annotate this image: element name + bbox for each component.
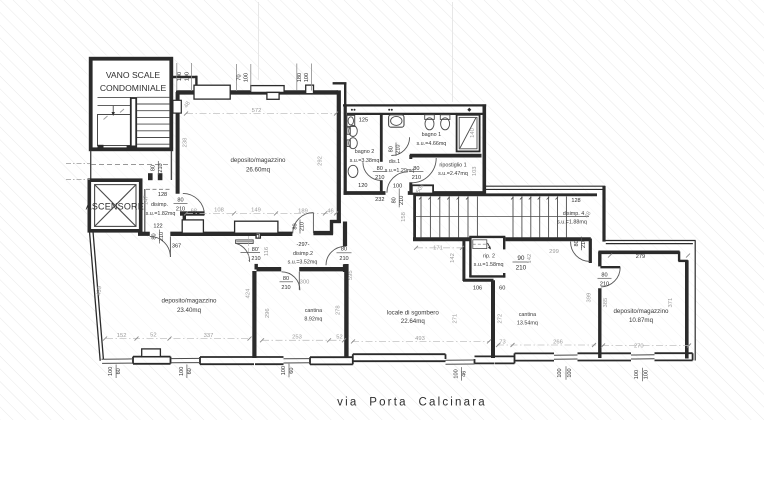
svg-text:60: 60 [289,367,295,373]
svg-text:210: 210 [600,282,609,288]
svg-text:147: 147 [143,195,149,205]
svg-text:100: 100 [185,72,191,81]
svg-text:158: 158 [401,212,407,222]
svg-text:292: 292 [318,156,324,166]
svg-text:108: 108 [214,208,224,214]
svg-text:deposito/magazzino: deposito/magazzino [230,157,286,164]
svg-text:80: 80 [341,247,347,253]
svg-text:cantina: cantina [305,308,322,314]
svg-text:232: 232 [375,197,384,203]
svg-text:52: 52 [336,335,342,341]
svg-text:100: 100 [108,367,114,376]
svg-text:70: 70 [236,74,242,80]
svg-text:100: 100 [179,367,185,376]
svg-text:367: 367 [172,244,181,250]
svg-text:371: 371 [668,298,674,308]
svg-text:296: 296 [265,308,271,318]
svg-text:299: 299 [549,249,559,255]
svg-text:80: 80 [151,165,157,171]
svg-text:60: 60 [187,368,193,374]
svg-text:s.u.=3.52mq: s.u.=3.52mq [288,260,318,266]
svg-text:572: 572 [252,108,262,114]
svg-text:100: 100 [281,366,287,375]
svg-text:493: 493 [415,336,425,342]
svg-text:278: 278 [336,305,342,315]
svg-text:210: 210 [158,163,164,172]
svg-text:s.u.=1.58mq: s.u.=1.58mq [474,262,504,268]
svg-text:210: 210 [412,175,421,181]
svg-text:10.87mq: 10.87mq [629,317,654,324]
svg-text:210: 210 [516,265,527,272]
svg-text:399: 399 [587,293,593,303]
svg-text:120: 120 [358,183,367,189]
svg-text:via Porta Calcinara: via Porta Calcinara [337,397,487,409]
svg-text:80: 80 [413,166,419,172]
svg-text:116: 116 [264,247,270,256]
svg-text:210: 210 [581,239,587,248]
svg-text:142: 142 [450,253,456,263]
svg-text:13.54mq: 13.54mq [517,321,538,327]
svg-text:80': 80' [252,247,259,253]
svg-text:266: 266 [553,339,563,345]
svg-text:100: 100 [634,370,640,379]
svg-text:337: 337 [204,333,214,339]
svg-text:140: 140 [470,128,476,138]
svg-text:46: 46 [461,371,467,377]
svg-text:disimp.: disimp. [151,202,168,208]
svg-text:60: 60 [499,285,505,291]
svg-text:22.64mq: 22.64mq [401,318,426,325]
svg-text:90: 90 [517,255,525,262]
svg-text:424: 424 [245,288,251,298]
svg-text:80: 80 [292,223,298,229]
svg-text:100: 100 [567,368,573,377]
svg-text:80: 80 [601,272,607,278]
svg-text:60: 60 [116,368,122,374]
svg-text:210: 210 [339,256,348,262]
svg-text:279: 279 [636,254,645,260]
svg-text:125: 125 [359,117,368,123]
svg-text:80: 80 [392,197,398,203]
svg-text:locale di sgombero: locale di sgombero [387,310,439,317]
svg-text:26.60mq: 26.60mq [246,167,271,174]
svg-text:bagno 1: bagno 1 [422,132,442,138]
svg-text:80: 80 [574,240,580,246]
svg-text:122: 122 [153,224,162,230]
svg-text:73: 73 [499,339,505,345]
svg-text:deposito/magazzino: deposito/magazzino [613,308,669,315]
svg-text:s.u.=1.29mq: s.u.=1.29mq [385,168,415,174]
svg-text:100: 100 [244,73,250,82]
svg-text:s.u.=2.47mq: s.u.=2.47mq [438,171,468,177]
svg-text:595: 595 [348,270,354,280]
svg-text:271: 271 [453,314,459,324]
svg-text:152: 152 [117,333,127,339]
svg-text:s.u.=4.66mq: s.u.=4.66mq [416,141,446,147]
svg-text:149: 149 [251,208,261,214]
svg-text:VANO SCALE: VANO SCALE [106,70,161,80]
svg-text:106: 106 [473,285,482,291]
svg-text:100: 100 [643,370,649,379]
svg-text:ASCENSORE: ASCENSORE [86,202,144,212]
svg-text:bagno 2: bagno 2 [355,149,375,155]
svg-text:100: 100 [393,184,402,190]
svg-text:ripostiglio 1: ripostiglio 1 [439,162,466,168]
svg-text:210: 210 [399,196,405,205]
svg-text:439: 439 [96,286,103,296]
svg-text:CONDOMINIALE: CONDOMINIALE [100,83,167,93]
svg-text:46: 46 [327,209,333,215]
svg-text:80: 80 [377,166,383,172]
svg-text:300: 300 [300,280,310,286]
svg-text:100: 100 [177,72,183,81]
svg-text:272: 272 [497,314,503,324]
svg-text:8.92mq: 8.92mq [304,317,322,323]
svg-text:s.u.=3.38mq: s.u.=3.38mq [350,158,380,164]
svg-text:128: 128 [571,198,580,204]
svg-text:s.u.=1.88mq: s.u.=1.88mq [557,219,587,225]
svg-text:-297-: -297- [296,242,309,248]
svg-text:171: 171 [433,245,443,251]
svg-text:80: 80 [389,146,395,152]
svg-text:100: 100 [304,73,310,82]
svg-text:deposito/magazzino: deposito/magazzino [161,298,217,305]
svg-text:253: 253 [292,335,302,341]
svg-text:80: 80 [283,276,289,282]
svg-text:210: 210 [251,256,260,262]
svg-text:100: 100 [454,369,460,378]
svg-text:52: 52 [150,333,156,339]
svg-text:disimp.2: disimp.2 [293,251,313,257]
svg-text:100: 100 [557,368,563,377]
svg-text:s.u.=1.82mq: s.u.=1.82mq [146,211,176,217]
svg-text:180: 180 [297,73,303,82]
svg-text:210: 210 [159,232,165,241]
svg-text:dis.1: dis.1 [389,159,400,165]
svg-text:80: 80 [177,198,183,204]
svg-text:103: 103 [472,166,478,176]
svg-text:disimp. 4: disimp. 4 [563,211,585,217]
svg-text:cantina: cantina [519,312,536,318]
svg-text:23.40mq: 23.40mq [177,307,202,314]
svg-text:142: 142 [527,254,533,264]
svg-text:210: 210 [375,175,384,181]
svg-text:rip. 2: rip. 2 [483,254,495,260]
svg-text:128: 128 [158,192,167,198]
svg-text:238: 238 [183,138,189,148]
svg-text:385: 385 [603,298,609,308]
svg-text:210: 210 [281,285,290,291]
svg-text:210: 210 [300,222,306,231]
svg-text:270: 270 [634,343,644,349]
